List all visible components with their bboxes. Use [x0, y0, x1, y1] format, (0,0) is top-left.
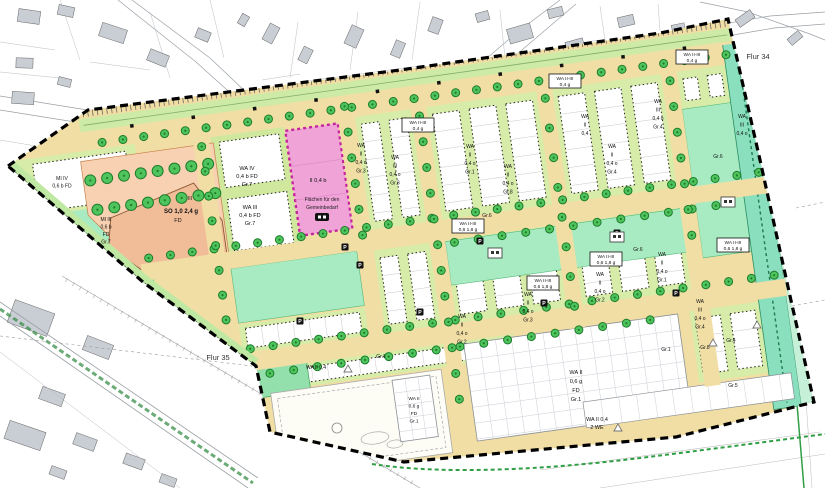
strip-label: Gr.2 [457, 340, 467, 346]
strip-label: Gr.3 [390, 181, 400, 187]
playground-icon [618, 235, 621, 238]
strip-label: II [584, 123, 587, 129]
strip-label: 0,4 o [502, 181, 513, 187]
wa-ii-garden-label: FD [572, 388, 579, 394]
wa-ii-garden-label: 0,6 g [570, 379, 582, 385]
wa-ii-garden-label: WA II [408, 396, 419, 402]
parking-icon-letter: P [418, 310, 422, 316]
gr-label: Gr.1 [661, 347, 671, 353]
building-plot [683, 77, 700, 101]
strip-label: WA [504, 164, 513, 170]
boxed-zoning-label-text: 0,4 g [687, 58, 698, 64]
strip-label: Gr.4 [653, 125, 663, 131]
playground-icon [496, 251, 499, 254]
strip-label: WA [696, 299, 705, 305]
gr-label: Gr.6 [482, 213, 492, 219]
parking-icon-letter: P [343, 245, 347, 251]
playground-icon [729, 200, 732, 203]
gr-label: Gr.6 [633, 247, 643, 253]
parking-icon-letter: P [358, 263, 362, 269]
strip-label: II [527, 301, 530, 307]
strip-label: III [698, 308, 702, 314]
strip-label: Gr.1 [465, 170, 475, 176]
strip-label: WA [581, 114, 590, 120]
cadastral-building [12, 91, 35, 105]
gr-label: Gr.8 [700, 345, 710, 351]
wa-ii-band-label: WA II 0,4 [306, 365, 326, 371]
playground-icon [491, 251, 494, 254]
playground-icon [613, 235, 616, 238]
boxed-zoning-label-text: WA II-III [557, 76, 574, 82]
mi-iii-label: Gr.7 [101, 240, 111, 246]
cadastral-building [16, 58, 33, 69]
strip-label: Gr.4 [695, 325, 705, 331]
strip-label: III [740, 123, 744, 129]
wa-iv-label: 0,4 b FD [236, 174, 257, 180]
strip-label: WA [458, 314, 467, 320]
strip-label: 0,4 o [594, 289, 605, 295]
wa-ii-garden-label: Gr.1 [409, 419, 418, 425]
zoning-plan-svg: Flur 34 Flur 35 WA IV0,4 b FDGr.7WA III0… [0, 0, 825, 488]
playground-icon [724, 200, 727, 203]
road-marker [130, 124, 134, 128]
road-marker [621, 55, 625, 59]
flur-35-label: Flur 35 [206, 353, 229, 362]
strip-label: 0,4 o [522, 309, 533, 315]
strip-label: WA [658, 252, 667, 258]
boxed-zoning-label-text: WA II-III [410, 120, 427, 126]
wa-iv-label: Gr.7 [242, 182, 253, 188]
mi-iii-label: MI III [100, 217, 111, 223]
gr-label: Gr.5 [728, 383, 738, 389]
strip-label: WA [608, 144, 617, 150]
boxed-zoning-label-text: 0,4 g [560, 82, 571, 88]
wa-ii-garden-label: WA II [569, 370, 583, 376]
wa-ii-garden-label: FD [411, 411, 418, 417]
wa-iii-label: Gr.7 [245, 221, 256, 227]
mi-iv-label: MI IV [56, 176, 68, 182]
strip-label: WA [357, 143, 366, 149]
strip-label: WA [391, 155, 400, 161]
strip-label: II [661, 261, 664, 267]
strip-label: 0,4 o [389, 172, 400, 178]
wa-ii-garden-label: 0,6 g [409, 404, 420, 410]
boxed-zoning-label-text: WA II-III [684, 52, 701, 58]
wa-iv-label: WA IV [239, 166, 255, 172]
gr-label: Gr.6 [713, 154, 723, 160]
strip-label: WA [466, 144, 475, 150]
wa-ii-band-gr-label: Gr.1 [376, 354, 386, 360]
strip-label: II [360, 152, 363, 158]
wa-iii-label: 0,4 b FD [239, 213, 260, 219]
road-marker [375, 89, 379, 93]
playground-icon [721, 197, 735, 207]
strip-label: III [393, 164, 397, 170]
mi-iv-label: 0,6 b FD [52, 184, 72, 190]
road-marker [314, 98, 318, 102]
boxed-zoning-label-text: WA II-III [460, 221, 477, 227]
strip-label: II [461, 323, 464, 329]
strip-label: 0,4 o [694, 316, 705, 322]
gemeinbedarf-name-label: Flächen für den [305, 197, 340, 203]
boxed-zoning-label-text: 0,6 1,8 g [597, 260, 616, 266]
strip-label: Gr.3 [356, 169, 366, 175]
so-value-label: SO 1,0 2,4 g [164, 209, 198, 215]
boxed-zoning-label-text: 0,6 1,8 g [534, 284, 553, 290]
strip-label: 0,4 o [464, 161, 475, 167]
boxed-zoning-label-text: WA II-III [725, 240, 742, 246]
gemeinbedarf-symbol-icon [315, 213, 329, 221]
so-roof-label: FD [174, 218, 181, 224]
strip-label: 0,4 o [606, 161, 617, 167]
wa-iii-label: WA III [243, 205, 258, 211]
gemeinbedarf-use-label: II 0,4 b [309, 178, 326, 184]
strip-label: WA [596, 272, 605, 278]
strip-label: 0,4 o [456, 331, 467, 337]
strip-label: 0,4 o [652, 116, 663, 122]
strip-label: WA [738, 114, 747, 120]
strip-label: 0,4 o [736, 131, 747, 137]
road-marker [437, 81, 441, 85]
strip-label: Gr.4 [607, 170, 617, 176]
bebauungsplan-map: Flur 34 Flur 35 WA IV0,4 b FDGr.7WA III0… [0, 0, 825, 488]
mi-iii-label: 0,6 b [100, 225, 111, 231]
gr-label: Gr.4 [726, 338, 736, 344]
strip-label: WA [654, 99, 663, 105]
strip-label: 0,4 [582, 131, 589, 137]
strip-label: Gr.3 [523, 318, 533, 324]
gemeinbedarf-symbol-icon [323, 216, 326, 219]
road-marker [191, 115, 195, 119]
wa-ii-2we-label: 2 WE [590, 425, 604, 431]
parking-icon-letter: P [674, 291, 678, 297]
wa-ii-garden-label: Gr.1 [571, 397, 582, 403]
boxed-zoning-label-text: WA II-III [535, 278, 552, 284]
boxed-zoning-label-text: WA II-III [598, 254, 615, 260]
playground-icon [610, 232, 624, 242]
road-marker [560, 63, 564, 67]
so-storeys-label: III [188, 196, 192, 202]
building-plot [707, 74, 724, 98]
parking-icon-letter: P [478, 239, 482, 245]
flur-34-label: Flur 34 [746, 52, 769, 61]
gemeinbedarf-name-label: Gemeinbedarf [306, 205, 338, 211]
strip-label: 0,4 o [656, 269, 667, 275]
strip-label: Gr.1 [657, 278, 667, 284]
road-marker [682, 46, 686, 50]
wa-ii-2we-label: WA II 0,4 [586, 417, 608, 423]
parking-icon-letter: P [542, 301, 546, 307]
boxed-zoning-label-text: 0,6 1,8 g [724, 246, 743, 252]
strip-label: II [469, 153, 472, 159]
strip-label: II [599, 281, 602, 287]
boxed-zoning-label-text: 0,4 g [413, 126, 424, 132]
playground-icon [488, 248, 502, 258]
strip-label: 0,4 d [355, 160, 366, 166]
strip-label: III [656, 108, 660, 114]
strip-label: II [507, 173, 510, 179]
cadastral-building [17, 9, 41, 25]
mi-iii-label: FD [103, 232, 110, 238]
road-marker [498, 72, 502, 76]
strip-label: II [611, 153, 614, 159]
strip-label: Gr.2 [595, 298, 605, 304]
road-marker [253, 107, 257, 111]
strip-label: Gr.8 [503, 190, 513, 196]
gemeinbedarf-symbol-icon [318, 216, 321, 219]
parking-icon-letter: P [298, 319, 302, 325]
strip-label: WA [524, 292, 533, 298]
boxed-zoning-label-text: 0,6 1,8 g [459, 227, 478, 233]
